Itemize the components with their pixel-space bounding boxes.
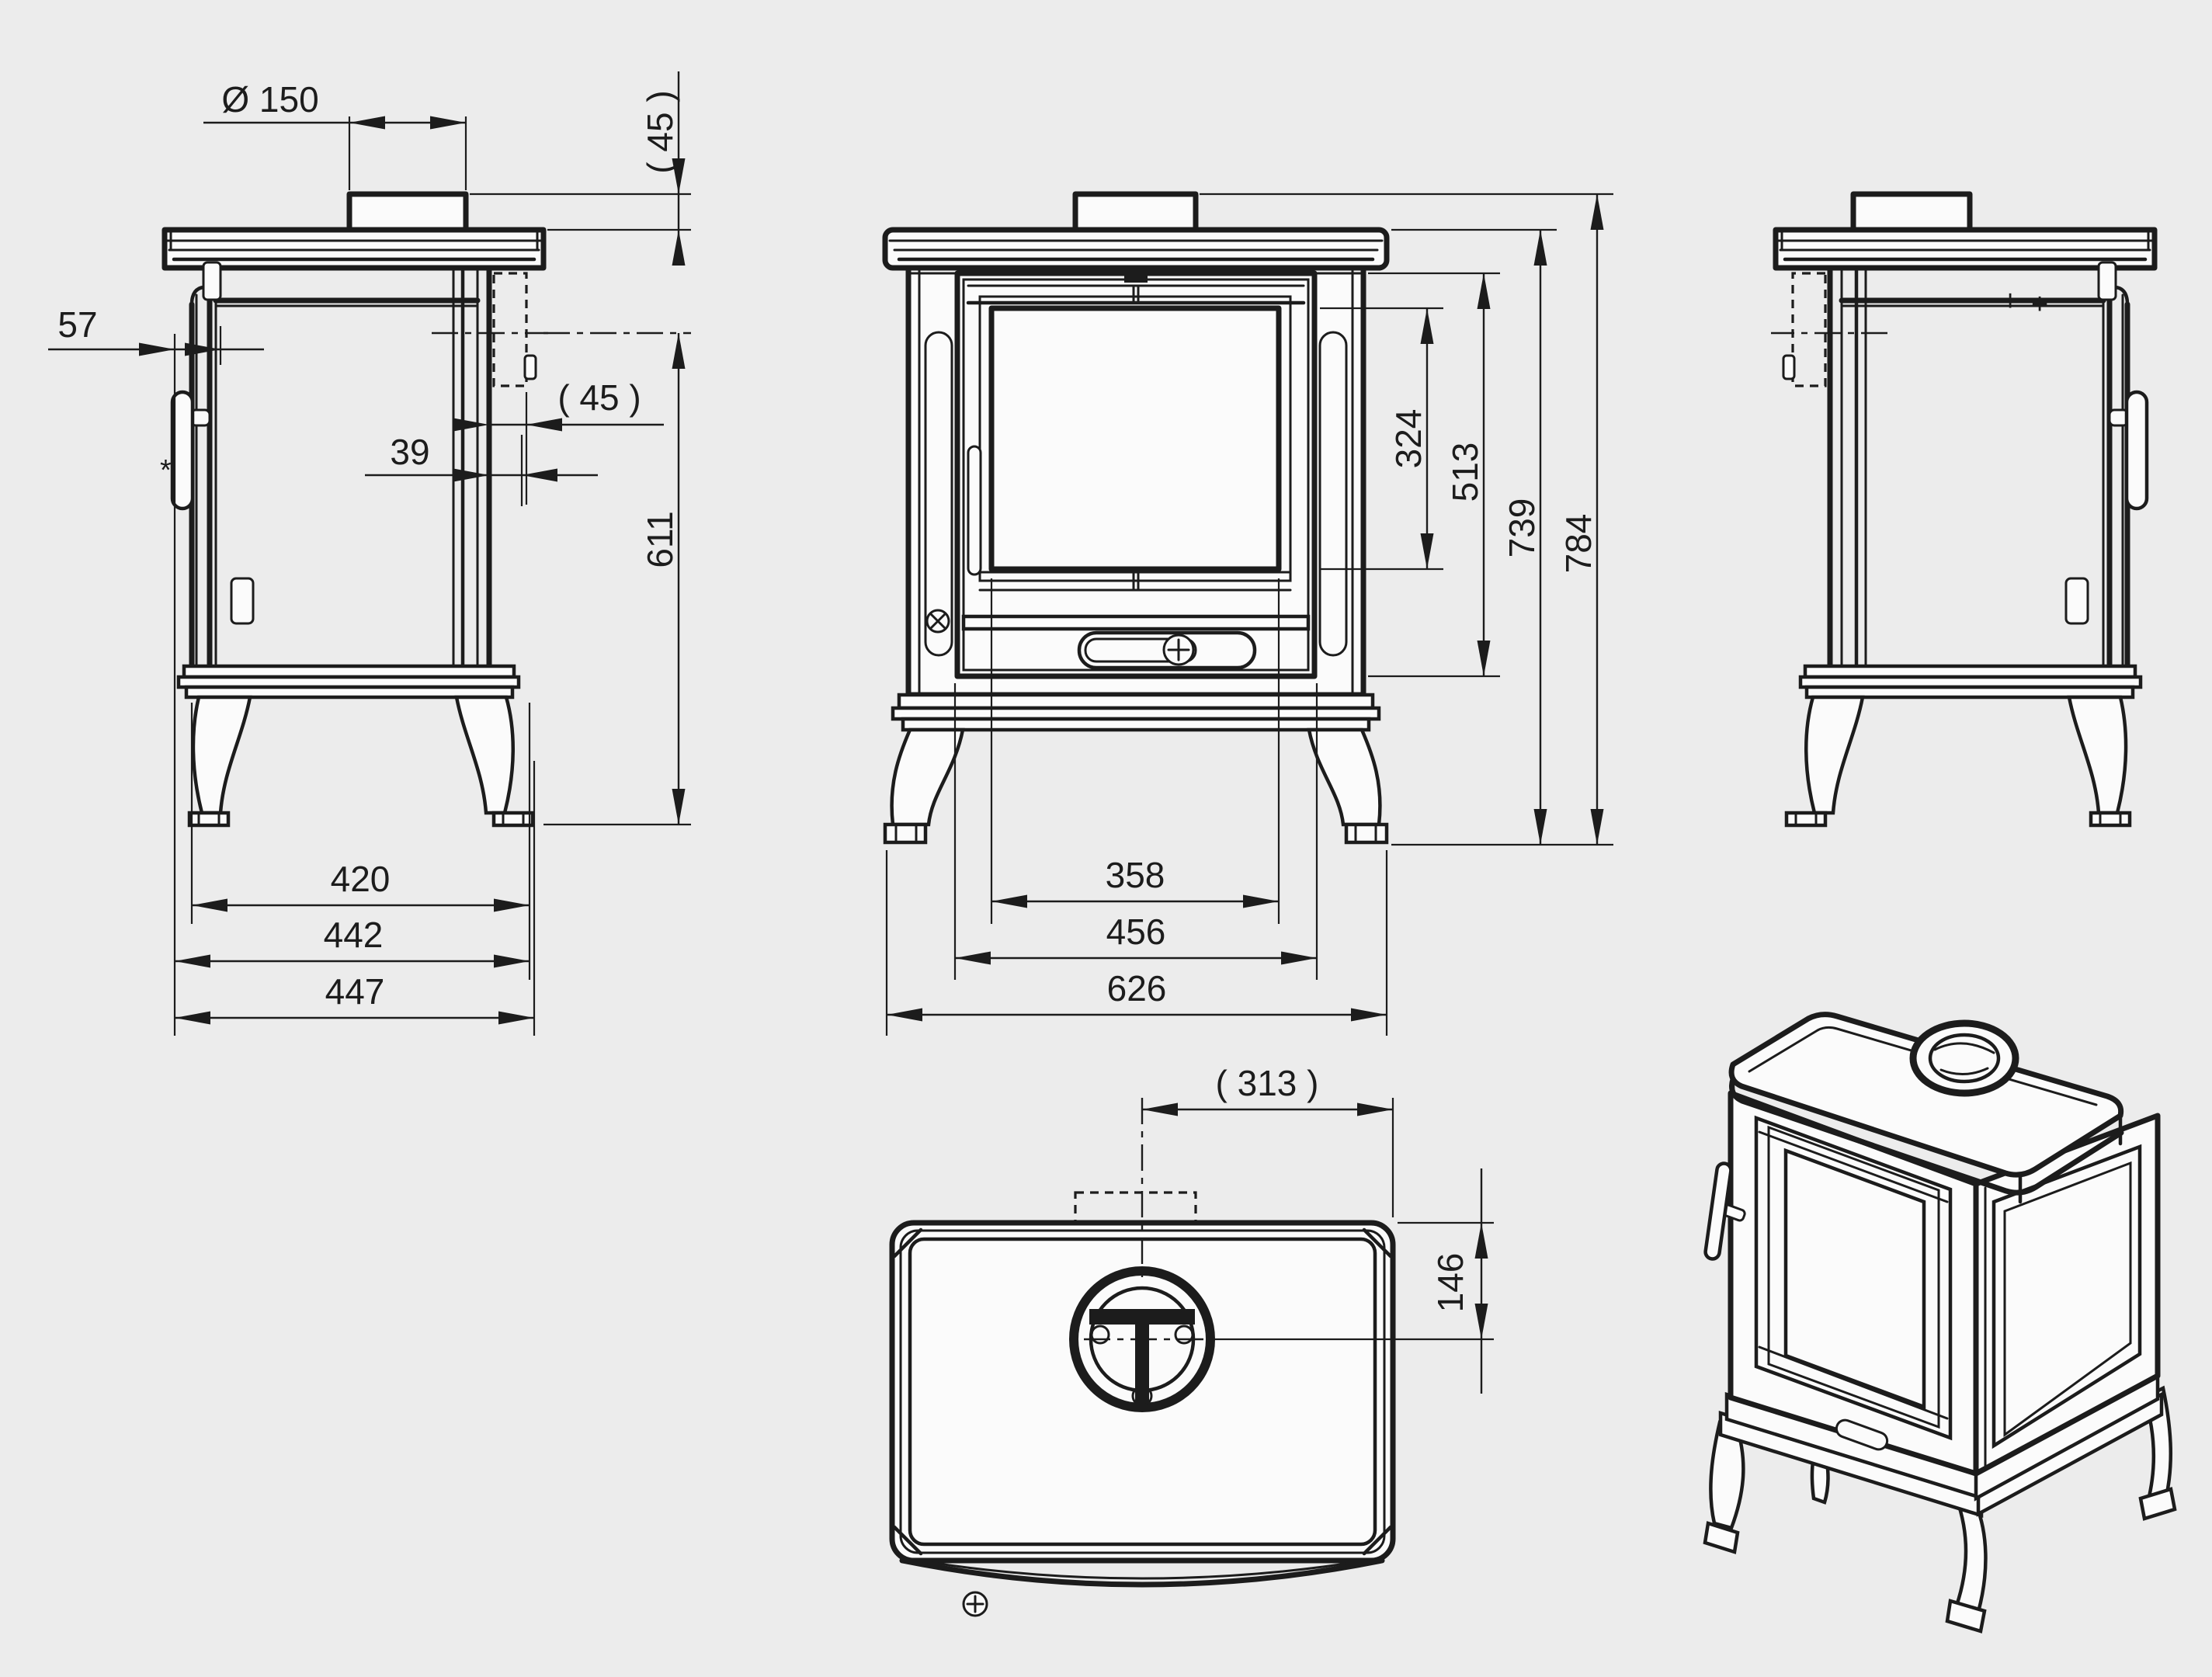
top-view: ( 313 ) 146 — [892, 1063, 1494, 1616]
dim-door-width: 456 — [1106, 911, 1166, 952]
dim-shield-gap-outer: ( 45 ) — [557, 377, 641, 418]
dim-shield-gap-inner: 39 — [390, 432, 429, 472]
handle-note-asterisk: * — [160, 454, 172, 487]
dim-collar-height: ( 45 ) — [640, 90, 680, 173]
adjuster-mark-2: + — [2031, 288, 2048, 321]
dim-glass-width: 358 — [1106, 855, 1165, 895]
drawing-page: Ø 150 ( 45 ) 57 * ( 45 ) — [0, 0, 2212, 1677]
dim-handle-clearance: 57 — [57, 304, 97, 345]
dim-glass-height: 324 — [1388, 409, 1429, 469]
dim-depth-with-handle: 442 — [324, 915, 384, 955]
dim-depth-body: 420 — [331, 859, 391, 899]
dim-overall-width: 626 — [1107, 968, 1167, 1009]
stove-dimension-drawing: Ø 150 ( 45 ) 57 * ( 45 ) — [0, 0, 2212, 1677]
dim-depth-overall: 447 — [325, 971, 385, 1012]
dim-outlet-height: 611 — [640, 511, 680, 568]
dim-flue-offset: ( 313 ) — [1216, 1063, 1319, 1103]
isometric-view — [1704, 1015, 2175, 1631]
dim-overall-height: 784 — [1558, 514, 1599, 574]
front-stove — [885, 194, 1387, 842]
dim-flue-diameter: Ø 150 — [221, 79, 318, 120]
left-side-view: Ø 150 ( 45 ) 57 * ( 45 ) — [48, 71, 691, 1036]
adjuster-mark-1: + — [2002, 285, 2019, 318]
dim-door-height: 513 — [1445, 443, 1485, 502]
front-view: 358 456 626 324 513 — [885, 194, 1613, 1036]
right-side-view: + + — [1771, 194, 2155, 825]
dim-flue-from-rear: 146 — [1430, 1253, 1471, 1313]
top-stove — [892, 1098, 1393, 1616]
dim-body-height: 739 — [1502, 498, 1542, 558]
